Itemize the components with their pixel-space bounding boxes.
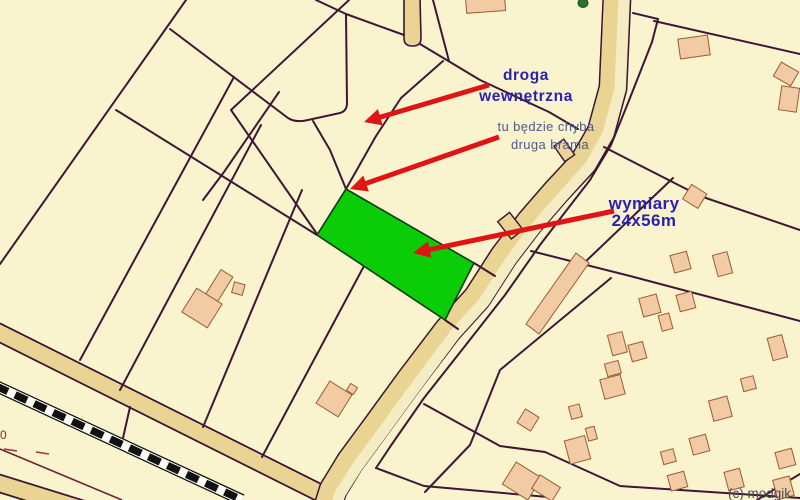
svg-text:(c) modgik: (c) modgik <box>728 486 791 500</box>
svg-text:wewnętrzna: wewnętrzna <box>478 88 573 105</box>
svg-text:tu będzie chyba: tu będzie chyba <box>497 119 594 134</box>
svg-text:0: 0 <box>0 428 7 442</box>
svg-text:druga brama: druga brama <box>511 137 589 152</box>
svg-text:24x56m: 24x56m <box>612 211 677 230</box>
svg-text:droga: droga <box>503 67 549 84</box>
